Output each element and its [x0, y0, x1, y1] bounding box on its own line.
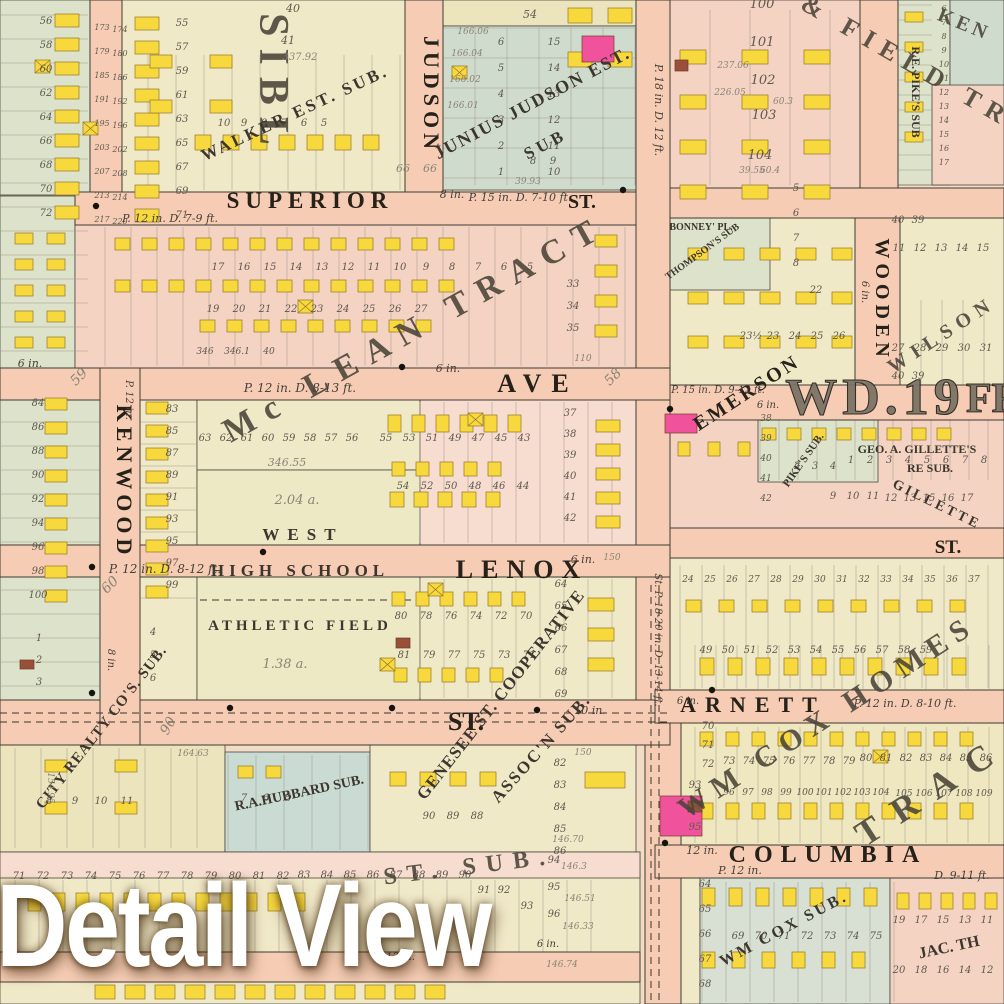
lot-number: 4 — [829, 461, 836, 472]
building — [308, 320, 323, 332]
building — [142, 280, 157, 292]
lot-number: 45 — [494, 433, 508, 444]
lot-number: 50 — [722, 645, 735, 656]
map-label: 60.3 — [773, 97, 793, 107]
building — [864, 888, 877, 906]
lot-number: 2 — [35, 655, 42, 666]
lot-number: 16 — [238, 262, 251, 273]
lot-number: 99 — [780, 788, 792, 798]
lot-number: 55 — [176, 18, 189, 29]
building — [488, 592, 501, 606]
building — [726, 732, 739, 746]
manhole-dot — [260, 549, 266, 555]
building — [852, 952, 865, 968]
map-label: P. 15 in. D. 9-12 ft. — [670, 385, 765, 396]
building — [688, 336, 708, 348]
lot-number: 41 — [563, 492, 577, 503]
building — [804, 140, 830, 154]
building — [450, 772, 466, 786]
manhole-dot — [227, 705, 233, 711]
building — [45, 470, 67, 482]
map-label: 6 in. — [18, 357, 43, 370]
lot-number: 103 — [853, 788, 870, 798]
map-label: 164.63 — [177, 749, 209, 759]
building — [851, 600, 866, 612]
lot-number: 42 — [759, 494, 772, 504]
map-label: 146.74 — [546, 960, 578, 970]
building — [200, 320, 215, 332]
lot-number: 93 — [521, 901, 534, 912]
building — [416, 592, 429, 606]
building — [884, 600, 899, 612]
lot-number: 57 — [176, 42, 189, 53]
building — [804, 185, 830, 199]
building — [588, 598, 614, 611]
lot-number: 54 — [397, 481, 410, 492]
building — [568, 8, 592, 23]
map-label: 2.04 a. — [274, 493, 320, 508]
lot-number: 75 — [870, 931, 883, 942]
lot-number: 88 — [32, 446, 45, 457]
lot-number: 53 — [403, 433, 416, 444]
building — [250, 238, 265, 250]
building — [908, 732, 921, 746]
lot-number: 100 — [796, 788, 813, 798]
building — [760, 248, 780, 260]
lot-number: 20 — [232, 304, 246, 315]
lot-number: 11 — [981, 915, 994, 926]
lot-number: 2 — [497, 141, 504, 152]
building — [508, 415, 521, 432]
building — [708, 442, 720, 456]
lot-number: 207 — [93, 167, 110, 176]
lot-number: 3 — [886, 455, 892, 466]
building — [45, 446, 67, 458]
lot-number: 174 — [112, 25, 127, 34]
lot-number: 202 — [111, 145, 127, 154]
lot-number: 15 — [939, 130, 949, 139]
lot-number: 40 — [759, 454, 772, 464]
lot-number: 29 — [791, 575, 804, 585]
map-label: 146.51 — [564, 894, 596, 904]
building — [937, 428, 951, 440]
lot-number: 62 — [40, 88, 53, 99]
lot-number: 84 — [554, 802, 567, 813]
lot-number: 109 — [975, 789, 992, 799]
building — [724, 292, 744, 304]
building — [726, 803, 739, 819]
manhole-dot — [620, 187, 626, 193]
building — [266, 766, 281, 778]
detail-view-watermark: Detail View — [0, 872, 490, 981]
lot-number: 83 — [920, 753, 933, 764]
lot-number: 65 — [699, 904, 712, 915]
building — [304, 238, 319, 250]
lot-number: 91 — [166, 492, 179, 503]
lot-number: 57 — [876, 645, 889, 656]
lot-number: 92 — [32, 494, 45, 505]
building — [464, 592, 477, 606]
lot-number: 56 — [854, 645, 867, 656]
lot-number: 49 — [699, 645, 713, 656]
lot-number: 14 — [959, 965, 972, 976]
lot-number: 72 — [40, 208, 53, 219]
lot-number: 59 — [283, 433, 296, 444]
lot-number: 101 — [815, 788, 832, 798]
city-block — [0, 745, 225, 852]
building — [752, 600, 767, 612]
lot-number: 34 — [902, 575, 914, 585]
lot-number: 26 — [388, 304, 402, 315]
building — [596, 516, 620, 528]
lot-number: 82 — [900, 753, 913, 764]
lot-number: 16 — [939, 144, 949, 153]
lot-number: 56 — [346, 433, 359, 444]
building-special — [20, 660, 34, 669]
building — [414, 492, 428, 507]
building — [837, 428, 851, 440]
lot-number: 67 — [176, 162, 189, 173]
building — [960, 803, 973, 819]
building — [783, 888, 796, 906]
building — [55, 14, 79, 27]
lot-number: 51 — [426, 433, 439, 444]
building — [223, 238, 238, 250]
building — [412, 280, 427, 292]
building — [608, 8, 632, 23]
lot-number: 63 — [176, 114, 189, 125]
lot-number: 40 — [891, 215, 905, 226]
building — [760, 292, 780, 304]
map-label: 150 — [603, 553, 620, 563]
lot-number: 90 — [423, 811, 436, 822]
building — [169, 238, 184, 250]
lot-number: 10 — [218, 118, 231, 129]
building — [818, 600, 833, 612]
map-label: 146.33 — [562, 922, 594, 932]
lot-number: 14 — [290, 262, 303, 273]
map-label: 39.93 — [515, 177, 541, 187]
building — [363, 135, 379, 150]
building — [439, 238, 454, 250]
lot-number: 1 — [36, 633, 42, 644]
lot-number: 52 — [421, 481, 434, 492]
lot-number: 39 — [564, 450, 577, 461]
lot-number: 20 — [892, 965, 906, 976]
lot-number: 75 — [473, 650, 486, 661]
building — [358, 280, 373, 292]
lot-number: 48 — [468, 481, 482, 492]
building — [985, 893, 997, 909]
lot-number: 11 — [368, 262, 381, 273]
building — [392, 462, 405, 476]
building — [307, 135, 323, 150]
building — [596, 468, 620, 480]
building — [335, 320, 350, 332]
lot-number: 4 — [149, 627, 156, 638]
lot-number: 55 — [380, 433, 393, 444]
lot-number: 69 — [176, 186, 189, 197]
lot-number: 83 — [554, 780, 567, 791]
lot-number: 12 — [914, 243, 927, 254]
lot-number: 52 — [766, 645, 779, 656]
lot-number: 95 — [166, 536, 179, 547]
lot-number: 11 — [867, 491, 880, 502]
map-label: 6 in. — [436, 362, 461, 375]
building — [412, 415, 425, 432]
lot-number: 85 — [554, 824, 567, 835]
building — [227, 320, 242, 332]
lot-number: 50 — [445, 481, 458, 492]
lot-number: 13 — [935, 243, 948, 254]
map-label: WD.19 — [785, 369, 965, 426]
map-label: 226.05 — [713, 88, 746, 98]
lot-number: 87 — [166, 448, 179, 459]
building — [55, 158, 79, 171]
lot-number: 79 — [843, 756, 856, 767]
map-label: HIGH SCHOOL — [211, 561, 389, 580]
building — [150, 100, 172, 113]
map-label: 6 in. — [537, 939, 559, 950]
building — [47, 285, 65, 296]
building — [778, 803, 791, 819]
map-label: RE SUB. — [907, 461, 953, 475]
building — [724, 248, 744, 260]
building — [719, 600, 734, 612]
building — [822, 952, 835, 968]
building — [595, 325, 617, 337]
manhole-dot — [89, 564, 95, 570]
building — [223, 280, 238, 292]
building — [390, 492, 404, 507]
map-label: P. 18 in. D. 12 ft. — [652, 63, 665, 156]
lot-number: 76 — [445, 611, 458, 622]
building — [412, 238, 427, 250]
lot-number: 5 — [498, 63, 504, 74]
building — [45, 542, 67, 554]
building — [304, 280, 319, 292]
lot-number: 13 — [939, 102, 949, 111]
lot-number: 88 — [471, 811, 484, 822]
lot-number: 208 — [111, 169, 127, 178]
building — [588, 628, 614, 641]
lot-number: 12 — [981, 965, 994, 976]
building — [934, 732, 947, 746]
building — [135, 41, 159, 54]
lot-number: 23 — [310, 304, 324, 315]
lot-number: 89 — [447, 811, 460, 822]
building — [115, 238, 130, 250]
lot-number: 53 — [788, 645, 801, 656]
building — [47, 311, 65, 322]
lot-number: 40 — [563, 471, 577, 482]
lot-number: 57 — [325, 433, 338, 444]
lot-number: 9 — [550, 156, 557, 167]
lot-number: 27 — [747, 575, 760, 585]
lot-number: 102 — [751, 73, 776, 88]
building — [15, 285, 33, 296]
building — [440, 462, 453, 476]
building — [55, 134, 79, 147]
lot-number: 46 — [492, 481, 506, 492]
lot-number: 11 — [893, 243, 906, 254]
map-label: P. 15 in. D. 7-10 ft. — [468, 191, 572, 204]
building — [464, 462, 477, 476]
building — [804, 803, 817, 819]
lot-number: 60 — [262, 433, 275, 444]
lot-number: 74 — [847, 931, 860, 942]
lot-number: 7 — [793, 233, 800, 244]
lot-number: 21 — [258, 304, 272, 315]
lot-number: 77 — [803, 756, 816, 767]
lot-number: 2 — [866, 455, 873, 466]
map-label: ATHLETIC FIELD — [208, 618, 392, 634]
building — [55, 110, 79, 123]
building — [210, 55, 232, 68]
lot-number: 17 — [915, 915, 928, 926]
building — [486, 492, 500, 507]
map-label: WOODEN — [871, 238, 893, 361]
lot-number: 173 — [94, 23, 109, 32]
lot-number: 66 — [699, 929, 712, 940]
building — [135, 185, 159, 198]
lot-number: 8 — [941, 32, 946, 41]
lot-number: 63 — [199, 433, 212, 444]
building — [596, 420, 620, 432]
lot-number: 186 — [112, 73, 127, 82]
lot-number: 22 — [809, 285, 823, 296]
lot-number: 16 — [937, 965, 950, 976]
map-label: 6 in. — [859, 281, 870, 303]
lot-number: 22 — [284, 304, 298, 315]
lot-number: 79 — [423, 650, 436, 661]
building — [238, 766, 253, 778]
building — [394, 668, 407, 682]
map-label: P. 12 in. D. 7-9 ft. — [121, 212, 218, 225]
lot-number: 61 — [176, 90, 189, 101]
lot-number: 84 — [32, 398, 45, 409]
lot-number: 6 — [793, 208, 800, 219]
building — [585, 772, 625, 788]
lot-number: 68 — [555, 667, 568, 678]
lot-number: 70 — [40, 184, 53, 195]
lot-number: 69 — [555, 689, 568, 700]
lot-number: 74 — [470, 611, 483, 622]
map-label: 6 in. — [677, 696, 699, 707]
lot-number: 72 — [801, 931, 814, 942]
lot-number: 203 — [93, 143, 109, 152]
lot-number: 25 — [810, 331, 824, 342]
lot-number: 23 — [766, 331, 780, 342]
building — [210, 100, 232, 113]
building — [45, 398, 67, 410]
building — [784, 658, 798, 675]
building — [390, 772, 406, 786]
map-label: P. 12 in. D. 8-12 ft. — [108, 562, 221, 576]
building — [55, 62, 79, 75]
lot-number: 8 — [449, 262, 455, 273]
building — [45, 422, 67, 434]
building — [680, 95, 706, 109]
building — [596, 492, 620, 504]
map-label: 6 in. — [571, 553, 596, 566]
building — [388, 415, 401, 432]
map-label: 150 — [574, 748, 591, 758]
building — [787, 428, 801, 440]
lot-number: 86 — [32, 422, 45, 433]
building — [762, 952, 775, 968]
lot-number: 14 — [548, 63, 561, 74]
lot-number: 47 — [471, 433, 485, 444]
building — [135, 161, 159, 174]
lot-number: 92 — [498, 885, 511, 896]
map-label: 146.3 — [561, 862, 587, 872]
lot-number: 70 — [520, 611, 533, 622]
lot-number: 15 — [264, 262, 277, 273]
lot-number: 49 — [448, 433, 462, 444]
map-label: FR — [966, 376, 1004, 422]
lot-number: 15 — [937, 915, 950, 926]
lot-number: 78 — [420, 611, 433, 622]
manhole-dot — [399, 364, 405, 370]
building — [792, 952, 805, 968]
lot-number: 4 — [497, 89, 504, 100]
building — [385, 238, 400, 250]
building — [785, 600, 800, 612]
building — [436, 415, 449, 432]
lot-number: 13 — [959, 915, 972, 926]
lot-number: 180 — [112, 49, 127, 58]
lot-number: 14 — [939, 116, 949, 125]
lot-number: 1 — [848, 455, 854, 466]
map-label: 10 in. — [574, 704, 606, 717]
building — [680, 140, 706, 154]
lot-number: 30 — [814, 575, 826, 585]
lot-number: 103 — [752, 108, 777, 123]
building — [756, 658, 770, 675]
building — [596, 444, 620, 456]
building — [115, 280, 130, 292]
lot-number: 70 — [702, 721, 715, 732]
building — [688, 292, 708, 304]
lot-number: 17 — [939, 158, 950, 167]
building — [812, 658, 826, 675]
building — [912, 428, 926, 440]
lot-number: 39 — [760, 434, 772, 444]
building — [254, 320, 269, 332]
building — [277, 238, 292, 250]
lot-number: 8 — [981, 455, 987, 466]
map-label: P. 12 in. — [123, 379, 134, 420]
building — [678, 442, 690, 456]
lot-number: 17 — [212, 262, 225, 273]
lot-number: 214 — [111, 193, 127, 202]
map-label: 6 in. — [757, 400, 779, 411]
manhole-dot — [93, 203, 99, 209]
lot-number: 38 — [760, 414, 772, 424]
lot-number: 64 — [40, 112, 53, 123]
lot-number: 185 — [94, 71, 109, 80]
lot-number: 5 — [793, 183, 799, 194]
building — [47, 337, 65, 348]
lot-number: 68 — [40, 160, 53, 171]
lot-number: 24 — [681, 575, 694, 585]
lot-number: 195 — [94, 119, 109, 128]
building — [887, 428, 901, 440]
lot-number: 12 — [342, 262, 355, 273]
building-special — [396, 638, 410, 648]
lot-number: 96 — [32, 542, 45, 553]
